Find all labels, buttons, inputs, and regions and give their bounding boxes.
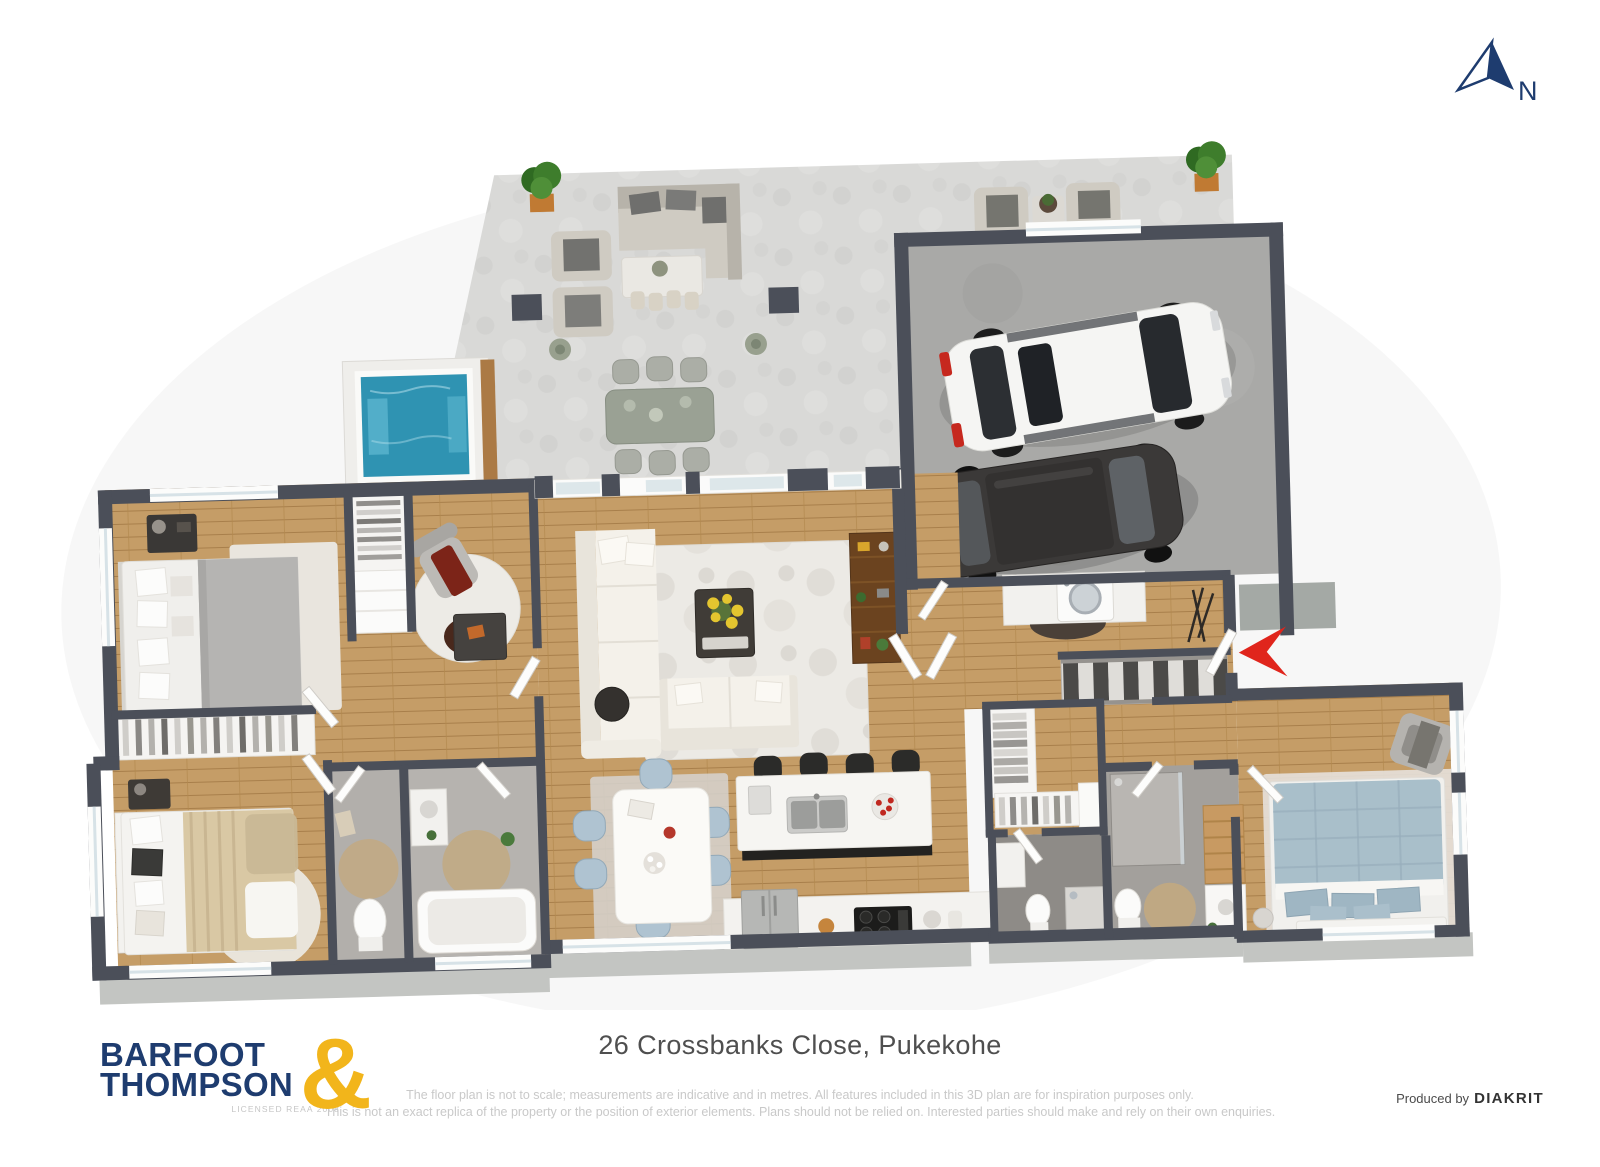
living-room — [575, 522, 903, 762]
floorplan — [49, 133, 1513, 1010]
produced-by-label: Produced by — [1396, 1091, 1469, 1106]
dining-area — [572, 757, 733, 945]
bedroom-1-closet — [350, 492, 412, 634]
north-label: N — [1518, 76, 1538, 106]
produced-by-brand: DIAKRIT — [1474, 1090, 1544, 1107]
logo-word-2: THOMPSON — [100, 1070, 350, 1100]
disclaimer-line-2: This is not an exact replica of the prop… — [0, 1104, 1600, 1121]
floorplan-image: N — [0, 0, 1600, 1010]
pool — [342, 357, 498, 495]
north-indicator: N — [1458, 42, 1538, 106]
north-arrow-outline — [1458, 42, 1492, 90]
produced-by: Produced byDIAKRIT — [1396, 1090, 1544, 1107]
outdoor-dining — [604, 355, 715, 476]
